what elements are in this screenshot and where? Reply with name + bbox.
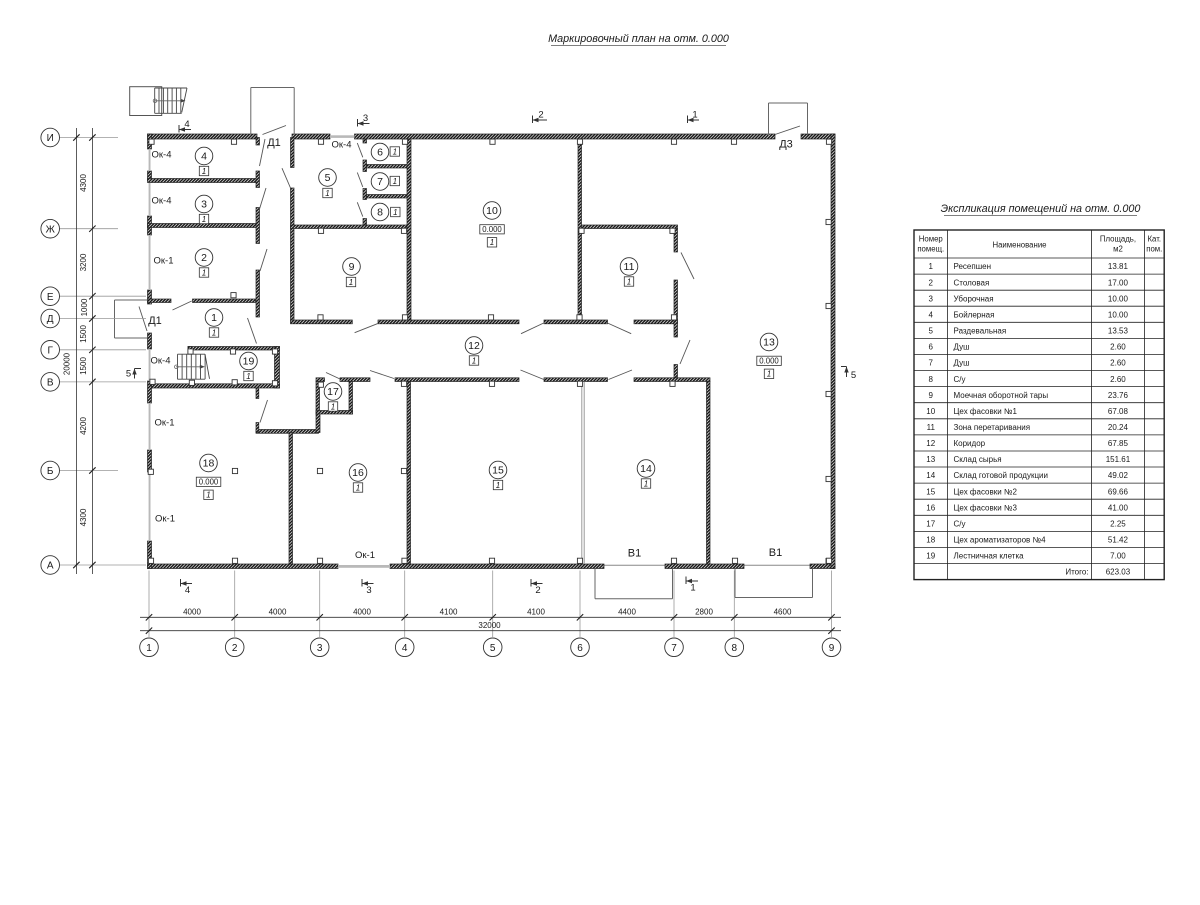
svg-text:8: 8 xyxy=(929,375,934,384)
svg-text:Бойлерная: Бойлерная xyxy=(954,310,995,319)
svg-text:18: 18 xyxy=(203,458,215,470)
svg-text:И: И xyxy=(47,133,54,144)
svg-text:1: 1 xyxy=(472,356,476,365)
svg-text:Ресепшен: Ресепшен xyxy=(954,262,992,271)
svg-text:10: 10 xyxy=(926,407,935,416)
svg-text:А: А xyxy=(47,561,54,572)
svg-text:Е: Е xyxy=(47,292,54,303)
svg-text:1000: 1000 xyxy=(80,298,89,316)
svg-text:1: 1 xyxy=(246,372,250,381)
svg-text:4000: 4000 xyxy=(269,607,287,616)
svg-text:4300: 4300 xyxy=(79,508,88,526)
svg-text:151.61: 151.61 xyxy=(1106,455,1131,464)
svg-text:1: 1 xyxy=(627,277,631,286)
svg-text:9: 9 xyxy=(829,643,835,654)
svg-text:Наименование: Наименование xyxy=(992,241,1046,250)
svg-text:17: 17 xyxy=(926,520,935,529)
svg-text:Номер: Номер xyxy=(919,235,944,244)
svg-text:5: 5 xyxy=(929,327,934,336)
svg-text:Ж: Ж xyxy=(46,224,56,235)
svg-text:м2: м2 xyxy=(1113,245,1123,254)
svg-text:4100: 4100 xyxy=(440,607,458,616)
svg-text:В1: В1 xyxy=(769,547,782,559)
svg-text:1500: 1500 xyxy=(79,325,88,343)
svg-text:1: 1 xyxy=(644,479,648,488)
svg-text:3: 3 xyxy=(929,294,934,303)
svg-text:1: 1 xyxy=(202,215,206,224)
svg-text:3: 3 xyxy=(201,199,207,211)
svg-text:1: 1 xyxy=(690,583,695,594)
svg-text:19: 19 xyxy=(243,356,255,368)
svg-text:7.00: 7.00 xyxy=(1110,552,1126,561)
svg-text:623.03: 623.03 xyxy=(1106,568,1131,577)
svg-text:Уборочная: Уборочная xyxy=(954,294,994,303)
svg-text:12: 12 xyxy=(468,340,480,352)
svg-text:Ок-4: Ок-4 xyxy=(152,196,172,207)
svg-text:11: 11 xyxy=(624,261,635,273)
svg-text:Моечная оборотной тары: Моечная оборотной тары xyxy=(954,391,1049,400)
svg-text:Склад сырья: Склад сырья xyxy=(954,455,1002,464)
svg-text:1: 1 xyxy=(212,328,216,337)
svg-text:19: 19 xyxy=(926,552,935,561)
svg-text:15: 15 xyxy=(926,487,935,496)
svg-text:Ок-1: Ок-1 xyxy=(355,550,375,561)
svg-text:6: 6 xyxy=(577,643,583,654)
svg-text:4: 4 xyxy=(929,310,934,319)
svg-text:10.00: 10.00 xyxy=(1108,310,1129,319)
svg-text:32000: 32000 xyxy=(478,621,501,630)
svg-text:Зона перетаривания: Зона перетаривания xyxy=(954,423,1031,432)
svg-text:15: 15 xyxy=(492,465,504,477)
svg-text:1: 1 xyxy=(393,208,397,217)
svg-text:1: 1 xyxy=(349,278,353,287)
svg-text:13: 13 xyxy=(763,337,775,349)
svg-text:2.25: 2.25 xyxy=(1110,520,1126,529)
svg-text:2.60: 2.60 xyxy=(1110,343,1126,352)
svg-text:1: 1 xyxy=(393,177,397,186)
svg-text:1: 1 xyxy=(929,262,934,271)
svg-text:0.000: 0.000 xyxy=(482,225,502,234)
svg-text:5: 5 xyxy=(851,370,856,381)
svg-text:Д1: Д1 xyxy=(267,137,281,149)
svg-text:5: 5 xyxy=(126,369,131,380)
svg-text:1: 1 xyxy=(202,167,206,176)
svg-text:9: 9 xyxy=(349,261,355,273)
svg-text:Коридор: Коридор xyxy=(954,439,986,448)
svg-text:4: 4 xyxy=(185,585,190,596)
svg-text:1: 1 xyxy=(490,238,494,247)
svg-text:Экспликация помещений на отм.: Экспликация помещений на отм. 0.000 xyxy=(941,203,1141,215)
svg-text:Ок-4: Ок-4 xyxy=(151,356,171,367)
svg-text:16: 16 xyxy=(352,467,364,479)
svg-text:Душ: Душ xyxy=(954,359,970,368)
svg-text:Площадь,: Площадь, xyxy=(1100,235,1136,244)
svg-text:4: 4 xyxy=(402,643,408,654)
svg-text:13: 13 xyxy=(926,455,935,464)
svg-text:69.66: 69.66 xyxy=(1108,487,1129,496)
svg-text:17.00: 17.00 xyxy=(1108,278,1129,287)
svg-text:Ок-1: Ок-1 xyxy=(154,256,174,267)
svg-text:2.60: 2.60 xyxy=(1110,375,1126,384)
svg-text:4: 4 xyxy=(201,151,207,163)
svg-text:Ок-1: Ок-1 xyxy=(155,418,175,429)
svg-text:1: 1 xyxy=(325,189,329,198)
svg-text:Склад готовой продукции: Склад готовой продукции xyxy=(954,471,1048,480)
svg-text:10.00: 10.00 xyxy=(1108,294,1129,303)
svg-text:10: 10 xyxy=(486,205,498,217)
svg-text:4: 4 xyxy=(184,119,189,130)
svg-text:1: 1 xyxy=(206,491,210,500)
svg-text:1: 1 xyxy=(767,370,771,379)
svg-text:4200: 4200 xyxy=(79,417,88,435)
svg-text:4000: 4000 xyxy=(183,607,201,616)
svg-text:2: 2 xyxy=(232,643,238,654)
svg-text:2: 2 xyxy=(929,278,934,287)
svg-text:1: 1 xyxy=(146,643,152,654)
svg-text:8: 8 xyxy=(732,643,738,654)
svg-text:20000: 20000 xyxy=(63,352,72,375)
svg-text:Душ: Душ xyxy=(954,343,970,352)
svg-text:23.76: 23.76 xyxy=(1108,391,1129,400)
svg-text:Цех фасовки №2: Цех фасовки №2 xyxy=(954,487,1018,496)
svg-text:2: 2 xyxy=(201,252,207,264)
svg-text:Цех фасовки №3: Цех фасовки №3 xyxy=(954,503,1018,512)
svg-text:14: 14 xyxy=(926,471,935,480)
svg-text:помещ.: помещ. xyxy=(917,245,944,254)
svg-text:3: 3 xyxy=(366,585,371,596)
svg-text:41.00: 41.00 xyxy=(1108,503,1129,512)
svg-text:3: 3 xyxy=(363,113,368,124)
svg-text:Ок-1: Ок-1 xyxy=(155,514,175,525)
svg-text:3: 3 xyxy=(317,643,323,654)
svg-text:Маркировочный план на отм. 0.0: Маркировочный план на отм. 0.000 xyxy=(548,33,729,45)
svg-text:67.85: 67.85 xyxy=(1108,439,1129,448)
svg-text:1: 1 xyxy=(692,110,697,121)
svg-text:Д1: Д1 xyxy=(148,315,162,327)
svg-text:16: 16 xyxy=(926,503,935,512)
svg-text:Лестничная клетка: Лестничная клетка xyxy=(954,552,1025,561)
svg-text:Д: Д xyxy=(47,314,54,325)
svg-text:2: 2 xyxy=(538,110,543,121)
svg-text:4400: 4400 xyxy=(618,607,636,616)
svg-text:13.53: 13.53 xyxy=(1108,327,1129,336)
svg-text:Ок-4: Ок-4 xyxy=(152,150,172,161)
svg-text:5: 5 xyxy=(325,172,331,184)
svg-text:51.42: 51.42 xyxy=(1108,536,1129,545)
svg-text:4000: 4000 xyxy=(353,607,371,616)
svg-text:Итого:: Итого: xyxy=(1065,568,1088,577)
svg-text:4100: 4100 xyxy=(527,607,545,616)
svg-text:С/у: С/у xyxy=(954,520,966,529)
svg-text:2800: 2800 xyxy=(695,607,713,616)
svg-text:6: 6 xyxy=(377,147,383,159)
svg-text:0.000: 0.000 xyxy=(199,478,219,487)
svg-text:Д3: Д3 xyxy=(779,139,793,151)
svg-text:Б: Б xyxy=(47,466,54,477)
svg-text:Цех фасовки №1: Цех фасовки №1 xyxy=(954,407,1018,416)
svg-text:пом.: пом. xyxy=(1146,245,1162,254)
svg-text:Столовая: Столовая xyxy=(954,278,990,287)
svg-text:Раздевальная: Раздевальная xyxy=(954,327,1007,336)
svg-text:14: 14 xyxy=(640,463,652,475)
svg-text:1: 1 xyxy=(356,483,360,492)
svg-text:67.08: 67.08 xyxy=(1108,407,1129,416)
svg-text:12: 12 xyxy=(926,439,935,448)
svg-text:0.000: 0.000 xyxy=(759,357,779,366)
svg-text:17: 17 xyxy=(327,386,339,398)
svg-text:Ок-4: Ок-4 xyxy=(332,140,352,151)
svg-text:7: 7 xyxy=(377,176,383,188)
svg-text:С/у: С/у xyxy=(954,375,966,384)
svg-text:В1: В1 xyxy=(628,548,641,560)
svg-text:1: 1 xyxy=(496,481,500,490)
svg-text:2.60: 2.60 xyxy=(1110,359,1126,368)
svg-text:4300: 4300 xyxy=(79,174,88,192)
svg-text:20.24: 20.24 xyxy=(1108,423,1129,432)
svg-text:Цех ароматизаторов №4: Цех ароматизаторов №4 xyxy=(954,536,1047,545)
svg-text:7: 7 xyxy=(671,643,677,654)
svg-text:18: 18 xyxy=(926,536,935,545)
svg-text:4600: 4600 xyxy=(774,607,792,616)
svg-text:1: 1 xyxy=(211,312,217,324)
svg-text:8: 8 xyxy=(377,207,383,219)
svg-text:5: 5 xyxy=(490,643,496,654)
svg-text:11: 11 xyxy=(927,423,936,432)
svg-text:2: 2 xyxy=(535,585,540,596)
svg-text:7: 7 xyxy=(929,359,934,368)
svg-text:1500: 1500 xyxy=(79,357,88,375)
svg-text:1: 1 xyxy=(202,268,206,277)
svg-text:В: В xyxy=(47,378,54,389)
svg-text:1: 1 xyxy=(393,147,397,156)
svg-text:3200: 3200 xyxy=(79,253,88,271)
svg-text:9: 9 xyxy=(929,391,934,400)
svg-text:Кат.: Кат. xyxy=(1148,235,1162,244)
svg-text:Г: Г xyxy=(47,345,53,356)
svg-text:6: 6 xyxy=(929,343,934,352)
svg-text:13.81: 13.81 xyxy=(1108,262,1129,271)
svg-text:49.02: 49.02 xyxy=(1108,471,1129,480)
svg-text:1: 1 xyxy=(331,402,335,411)
